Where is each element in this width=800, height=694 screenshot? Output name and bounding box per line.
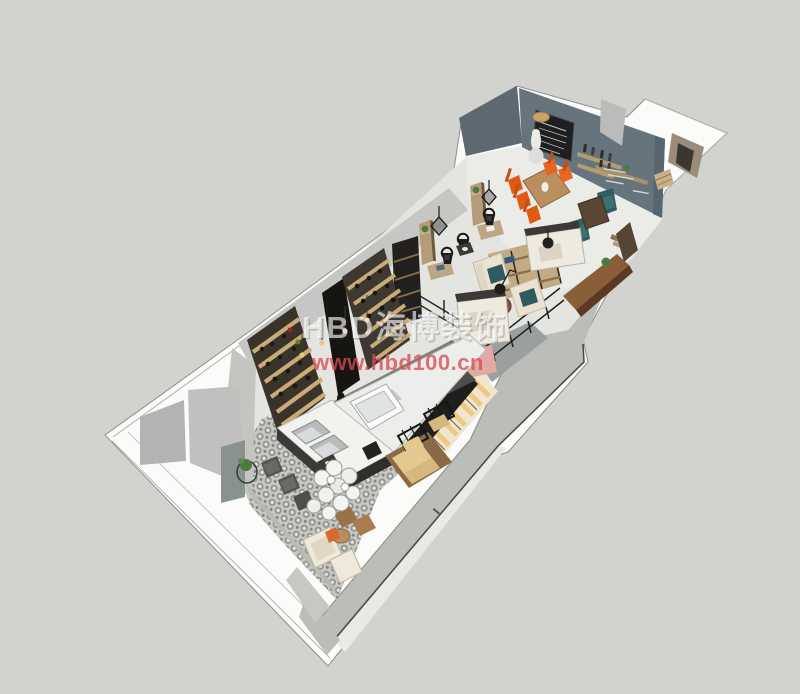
svg-text:www.hbd100.cn: www.hbd100.cn (311, 350, 484, 375)
svg-text:HBD海博装饰: HBD海博装饰 (302, 310, 507, 345)
